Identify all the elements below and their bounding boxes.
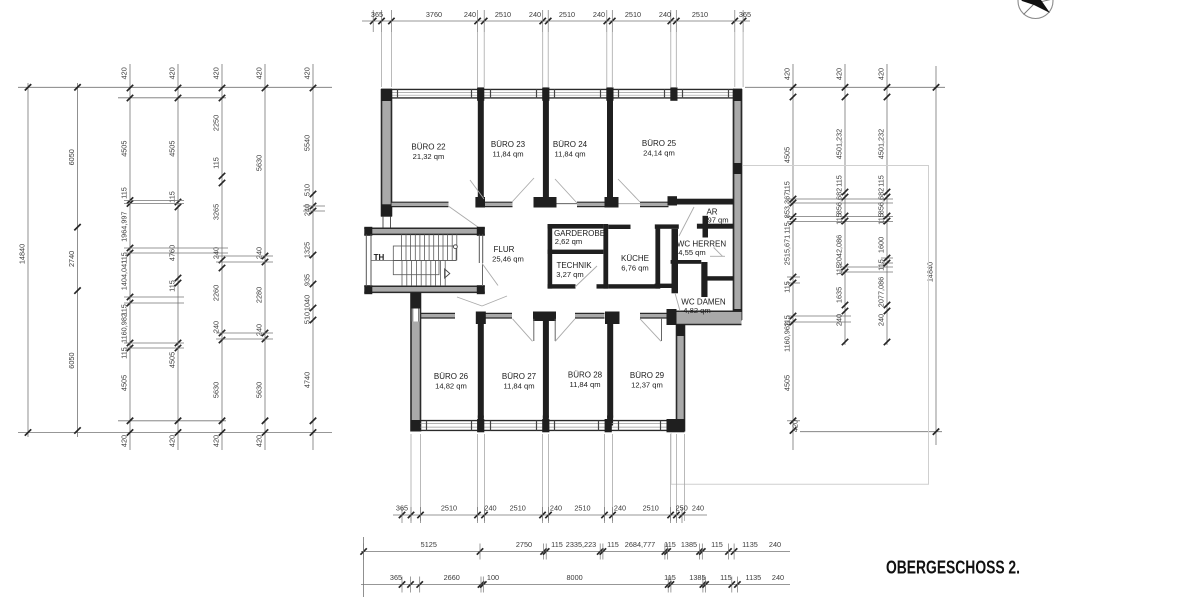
svg-text:115: 115 [835, 264, 844, 276]
svg-text:6,76 qm: 6,76 qm [621, 264, 648, 273]
svg-text:5630: 5630 [255, 382, 264, 398]
svg-text:4501,232: 4501,232 [877, 129, 886, 159]
svg-text:2042,086: 2042,086 [835, 235, 844, 265]
svg-text:240: 240 [692, 504, 704, 513]
svg-text:4505: 4505 [168, 352, 177, 368]
svg-text:1135: 1135 [746, 573, 762, 582]
svg-text:12,37 qm: 12,37 qm [631, 381, 663, 390]
svg-text:240: 240 [769, 540, 781, 549]
svg-text:8000: 8000 [566, 573, 582, 582]
svg-text:115: 115 [551, 540, 563, 549]
svg-text:115: 115 [664, 573, 676, 582]
svg-text:4501,232: 4501,232 [835, 129, 844, 159]
svg-text:115: 115 [711, 540, 723, 549]
svg-text:BÜRO 22: BÜRO 22 [411, 143, 446, 152]
svg-text:14840: 14840 [926, 262, 935, 282]
svg-text:TH: TH [374, 253, 385, 262]
svg-text:115: 115 [212, 157, 221, 169]
svg-text:5630: 5630 [255, 155, 264, 171]
svg-text:1964,997: 1964,997 [120, 211, 129, 241]
svg-text:115: 115 [877, 175, 886, 187]
svg-text:1385: 1385 [681, 540, 697, 549]
svg-text:4505: 4505 [168, 141, 177, 157]
svg-text:240: 240 [255, 324, 264, 336]
svg-text:1325: 1325 [303, 242, 312, 258]
svg-text:240: 240 [772, 573, 784, 582]
svg-text:420: 420 [212, 435, 221, 447]
svg-text:240: 240 [877, 314, 886, 326]
svg-text:115: 115 [168, 280, 177, 292]
svg-text:420: 420 [783, 68, 792, 80]
svg-text:365: 365 [396, 504, 408, 513]
svg-text:420: 420 [120, 435, 129, 447]
svg-text:240: 240 [464, 10, 476, 19]
svg-text:BÜRO 26: BÜRO 26 [434, 372, 469, 381]
svg-text:420: 420 [791, 420, 800, 432]
svg-text:2280: 2280 [255, 287, 264, 303]
svg-text:240: 240 [614, 504, 626, 513]
svg-text:6050: 6050 [67, 149, 76, 165]
svg-text:3265: 3265 [212, 204, 221, 220]
svg-text:115: 115 [783, 222, 792, 234]
svg-text:21,32 qm: 21,32 qm [413, 152, 445, 161]
svg-text:OBERGESCHOSS 2.: OBERGESCHOSS 2. [886, 557, 1020, 578]
svg-text:2740: 2740 [67, 251, 76, 267]
svg-text:856,682: 856,682 [877, 188, 886, 214]
svg-text:2750: 2750 [516, 540, 532, 549]
svg-text:420: 420 [303, 67, 312, 79]
svg-text:2510: 2510 [574, 504, 590, 513]
svg-text:115: 115 [877, 213, 886, 225]
svg-text:240: 240 [835, 314, 844, 326]
svg-text:115: 115 [607, 540, 619, 549]
svg-text:510: 510 [303, 312, 312, 324]
svg-text:2515,671: 2515,671 [783, 235, 792, 265]
svg-text:2,62 qm: 2,62 qm [555, 237, 582, 246]
svg-text:420: 420 [835, 68, 844, 80]
svg-text:935: 935 [303, 274, 312, 286]
svg-text:11,84 qm: 11,84 qm [554, 150, 585, 159]
svg-text:4505: 4505 [783, 147, 792, 163]
svg-text:14,82 qm: 14,82 qm [435, 382, 467, 391]
svg-text:KÜCHE: KÜCHE [621, 254, 649, 263]
svg-text:420: 420 [168, 435, 177, 447]
svg-text:853,367: 853,367 [783, 192, 792, 218]
svg-text:3760: 3760 [426, 10, 442, 19]
svg-text:240: 240 [550, 504, 562, 513]
svg-text:1404,041: 1404,041 [120, 260, 129, 290]
svg-text:115: 115 [783, 315, 792, 327]
svg-text:365: 365 [371, 10, 383, 19]
svg-text:1385: 1385 [689, 573, 705, 582]
svg-text:240: 240 [212, 321, 221, 333]
svg-text:5125: 5125 [421, 540, 437, 549]
svg-text:1160,982: 1160,982 [120, 313, 129, 343]
svg-text:2510: 2510 [643, 504, 659, 513]
svg-text:240: 240 [593, 10, 605, 19]
svg-text:4740: 4740 [303, 372, 312, 388]
svg-text:115: 115 [783, 181, 792, 193]
svg-text:2510: 2510 [495, 10, 511, 19]
svg-text:365: 365 [390, 573, 402, 582]
svg-text:2510: 2510 [625, 10, 641, 19]
svg-text:420: 420 [877, 68, 886, 80]
svg-text:115: 115 [120, 187, 129, 199]
svg-text:420: 420 [255, 435, 264, 447]
svg-text:4505: 4505 [120, 375, 129, 391]
svg-text:420: 420 [120, 67, 129, 79]
svg-text:2684,777: 2684,777 [625, 540, 655, 549]
svg-text:11,84 qm: 11,84 qm [492, 150, 523, 159]
svg-text:115: 115 [120, 347, 129, 359]
svg-text:240: 240 [659, 10, 671, 19]
svg-text:115: 115 [835, 213, 844, 225]
svg-text:856,682: 856,682 [835, 188, 844, 214]
svg-text:2510: 2510 [692, 10, 708, 19]
svg-text:,97 qm: ,97 qm [705, 216, 728, 225]
svg-text:14840: 14840 [18, 244, 27, 264]
svg-text:2510: 2510 [441, 504, 457, 513]
svg-text:420: 420 [212, 67, 221, 79]
svg-text:2335,223: 2335,223 [566, 540, 596, 549]
svg-text:3,27 qm: 3,27 qm [556, 270, 583, 279]
svg-text:5630: 5630 [212, 382, 221, 398]
svg-text:6050: 6050 [67, 352, 76, 368]
svg-text:25,46 qm: 25,46 qm [492, 255, 524, 264]
svg-text:11,84 qm: 11,84 qm [503, 382, 534, 391]
svg-text:100: 100 [487, 573, 499, 582]
svg-text:115: 115 [720, 573, 732, 582]
svg-text:2077,086: 2077,086 [877, 277, 886, 307]
svg-text:BÜRO 25: BÜRO 25 [642, 139, 677, 148]
svg-text:365: 365 [739, 10, 751, 19]
svg-text:2660: 2660 [444, 573, 460, 582]
svg-text:2250: 2250 [212, 115, 221, 131]
svg-text:1040: 1040 [303, 295, 312, 311]
svg-text:BÜRO 28: BÜRO 28 [568, 371, 603, 380]
svg-text:2260: 2260 [212, 285, 221, 301]
svg-text:115: 115 [664, 540, 676, 549]
svg-text:250: 250 [676, 504, 688, 513]
svg-text:115: 115 [168, 191, 177, 203]
svg-text:11,84 qm: 11,84 qm [569, 380, 600, 389]
svg-text:2510: 2510 [510, 504, 526, 513]
svg-text:5540: 5540 [303, 135, 312, 151]
svg-text:4,82 qm: 4,82 qm [683, 306, 710, 315]
svg-text:1600: 1600 [877, 237, 886, 253]
svg-text:240: 240 [255, 247, 264, 259]
svg-text:BÜRO 24: BÜRO 24 [553, 140, 588, 149]
svg-text:BÜRO 27: BÜRO 27 [502, 372, 537, 381]
svg-text:510: 510 [303, 184, 312, 196]
svg-text:24,14 qm: 24,14 qm [643, 149, 675, 158]
svg-text:115: 115 [835, 175, 844, 187]
svg-text:240: 240 [484, 504, 496, 513]
svg-text:2510: 2510 [559, 10, 575, 19]
svg-text:115: 115 [783, 281, 792, 293]
svg-text:4505: 4505 [783, 375, 792, 391]
svg-text:420: 420 [168, 67, 177, 79]
svg-text:1135: 1135 [742, 540, 758, 549]
svg-text:BÜRO 23: BÜRO 23 [491, 140, 526, 149]
svg-text:1635: 1635 [835, 287, 844, 303]
svg-text:TECHNIK: TECHNIK [556, 261, 592, 270]
svg-text:240: 240 [529, 10, 541, 19]
svg-text:4,55 qm: 4,55 qm [678, 248, 705, 257]
svg-text:BÜRO 29: BÜRO 29 [630, 371, 665, 380]
svg-text:FLUR: FLUR [494, 245, 515, 254]
svg-text:115: 115 [877, 259, 886, 271]
svg-text:420: 420 [255, 67, 264, 79]
svg-text:4505: 4505 [120, 141, 129, 157]
